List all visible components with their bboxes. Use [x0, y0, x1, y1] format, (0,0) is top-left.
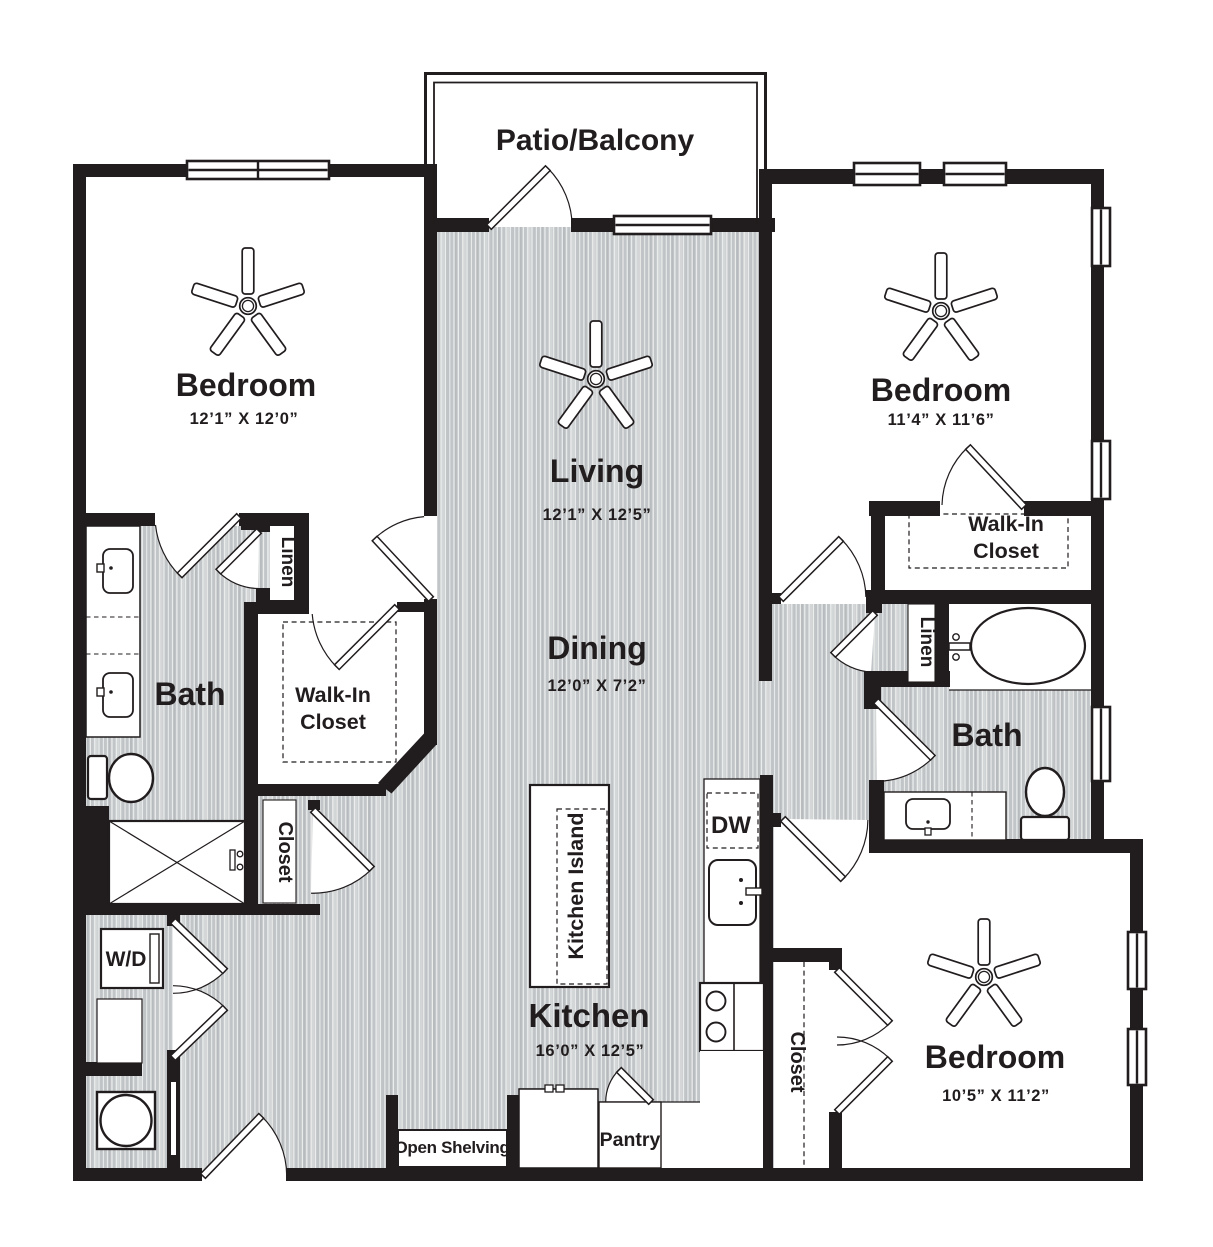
svg-text:12’1” X 12’5”: 12’1” X 12’5” [543, 506, 652, 524]
svg-text:Kitchen Island: Kitchen Island [564, 813, 588, 960]
svg-text:Linen: Linen [916, 617, 937, 668]
svg-text:Closet: Closet [300, 710, 366, 734]
svg-text:16’0” X 12’5”: 16’0” X 12’5” [536, 1042, 645, 1060]
svg-text:10’5” X 11’2”: 10’5” X 11’2” [942, 1087, 1050, 1105]
svg-text:11’4” X 11’6”: 11’4” X 11’6” [888, 411, 995, 429]
svg-text:Open Shelving: Open Shelving [394, 1138, 509, 1157]
svg-text:Patio/Balcony: Patio/Balcony [496, 124, 695, 157]
svg-text:Bedroom: Bedroom [176, 367, 316, 403]
svg-text:Bedroom: Bedroom [871, 372, 1011, 408]
svg-text:Closet: Closet [274, 821, 296, 882]
svg-text:Dining: Dining [547, 630, 647, 666]
svg-text:Walk-In: Walk-In [295, 683, 371, 707]
svg-text:Bath: Bath [154, 676, 225, 712]
svg-text:Linen: Linen [277, 537, 298, 588]
svg-text:Bedroom: Bedroom [925, 1039, 1065, 1075]
svg-text:12’1” X 12’0”: 12’1” X 12’0” [190, 410, 299, 428]
svg-text:W/D: W/D [106, 948, 147, 971]
svg-text:Closet: Closet [973, 539, 1039, 563]
svg-text:Living: Living [550, 453, 644, 489]
svg-text:Bath: Bath [951, 717, 1022, 753]
svg-text:Closet: Closet [786, 1031, 808, 1092]
svg-text:Pantry: Pantry [600, 1129, 661, 1151]
svg-text:Walk-In: Walk-In [968, 512, 1044, 536]
svg-text:12’0” X 7’2”: 12’0” X 7’2” [548, 677, 647, 695]
svg-text:Kitchen: Kitchen [528, 997, 649, 1034]
svg-text:DW: DW [711, 812, 751, 839]
